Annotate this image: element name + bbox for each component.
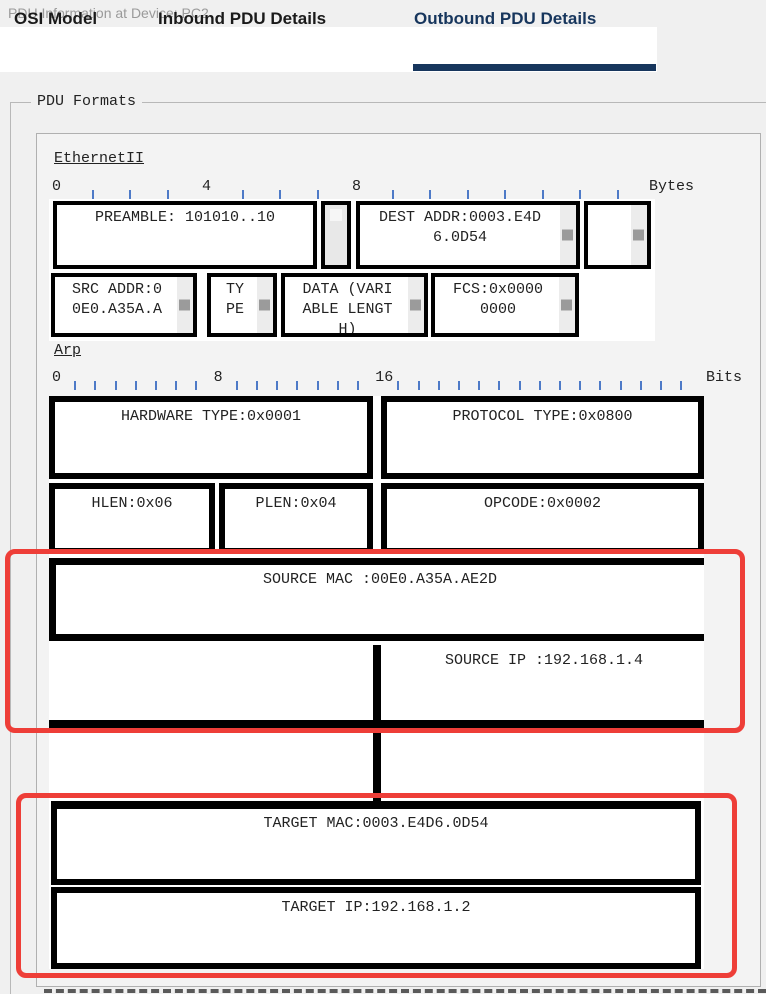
field-hardware-type: HARDWARE TYPE:0x0001 bbox=[49, 396, 373, 479]
ruler-tick bbox=[276, 381, 278, 390]
field-target-mac-value: TARGET MAC:0003.E4D6.0D54 bbox=[57, 809, 695, 834]
window-titlebar: PDU Information at Device: PC2 bbox=[0, 0, 766, 27]
ethernet-section-title: EthernetII bbox=[54, 150, 144, 167]
scrollbar-thumb[interactable] bbox=[410, 300, 421, 311]
ruler-tick bbox=[519, 381, 521, 390]
ruler-tick bbox=[559, 381, 561, 390]
field-source-mac: SOURCE MAC :00E0.A35A.AE2D bbox=[49, 558, 704, 641]
field-dest-addr-value: DEST ADDR:0003.E4D 6.0D54 bbox=[360, 205, 576, 248]
ruler-tick bbox=[317, 381, 319, 390]
ruler-number: 0 bbox=[52, 178, 61, 195]
field-src-addr: SRC ADDR:0 0E0.A35A.A bbox=[51, 273, 197, 337]
field-plen: PLEN:0x04 bbox=[219, 483, 373, 554]
field-protocol-type-value: PROTOCOL TYPE:0x0800 bbox=[387, 402, 698, 427]
tab-inbound-pdu-details[interactable]: Inbound PDU Details bbox=[158, 9, 326, 29]
field-data-value: DATA (VARI ABLE LENGT H) bbox=[285, 277, 424, 337]
ruler-tick bbox=[579, 190, 581, 199]
field-target-ip: TARGET IP:192.168.1.2 bbox=[51, 887, 701, 969]
ruler-tick bbox=[74, 381, 76, 390]
ruler-tick bbox=[337, 381, 339, 390]
ruler-tick bbox=[357, 381, 359, 390]
ruler-tick bbox=[467, 190, 469, 199]
ruler-tick bbox=[478, 381, 480, 390]
arp-section-title: Arp bbox=[54, 342, 81, 359]
ruler-tick bbox=[504, 190, 506, 199]
field-hlen: HLEN:0x06 bbox=[49, 483, 215, 554]
field-opcode: OPCODE:0x0002 bbox=[381, 483, 704, 554]
scrollbar-thumb[interactable] bbox=[633, 230, 644, 241]
ruler-number: 4 bbox=[202, 178, 211, 195]
ruler-tick bbox=[660, 381, 662, 390]
active-tab-underline bbox=[413, 64, 656, 71]
field-target-mac: TARGET MAC:0003.E4D6.0D54 bbox=[51, 801, 701, 885]
ruler-tick bbox=[155, 381, 157, 390]
ruler-tick bbox=[279, 190, 281, 199]
scrollbar-thumb[interactable] bbox=[561, 300, 572, 311]
field-target-ip-value: TARGET IP:192.168.1.2 bbox=[57, 893, 695, 918]
scrollbar-thumb[interactable] bbox=[330, 209, 342, 221]
ruler-tick bbox=[680, 381, 682, 390]
ruler-tick bbox=[498, 381, 500, 390]
tab-outbound-pdu-details[interactable]: Outbound PDU Details bbox=[414, 9, 596, 29]
field-protocol-type: PROTOCOL TYPE:0x0800 bbox=[381, 396, 704, 479]
ruler-tick bbox=[542, 190, 544, 199]
ruler-number: 8 bbox=[352, 178, 361, 195]
ruler-tick bbox=[236, 381, 238, 390]
ruler-unit-label: Bits bbox=[706, 369, 742, 386]
ruler-tick bbox=[579, 381, 581, 390]
ruler-tick bbox=[458, 381, 460, 390]
field-source-mac-value: SOURCE MAC :00E0.A35A.AE2D bbox=[56, 565, 704, 590]
ruler-tick bbox=[135, 381, 137, 390]
scrollbar-thumb[interactable] bbox=[259, 300, 270, 311]
ruler-number: 16 bbox=[375, 369, 393, 386]
ruler-tick bbox=[617, 190, 619, 199]
ruler-tick bbox=[397, 381, 399, 390]
field-empty bbox=[584, 201, 651, 269]
arp-ruler: 0816Bits bbox=[37, 369, 761, 391]
ruler-tick bbox=[620, 381, 622, 390]
field-dest-addr: DEST ADDR:0003.E4D 6.0D54 bbox=[356, 201, 580, 269]
ruler-tick bbox=[317, 190, 319, 199]
ruler-tick bbox=[175, 381, 177, 390]
ruler-tick bbox=[242, 190, 244, 199]
field-opcode-value: OPCODE:0x0002 bbox=[387, 489, 698, 514]
ruler-unit-label: Bytes bbox=[649, 178, 694, 195]
scrollbar-thumb[interactable] bbox=[179, 300, 190, 311]
field-data: DATA (VARI ABLE LENGT H) bbox=[281, 273, 428, 337]
field-type: TY PE bbox=[207, 273, 277, 337]
scrollbar-thumb[interactable] bbox=[562, 230, 573, 241]
tab-osi-model[interactable]: OSI Model bbox=[14, 9, 97, 29]
ruler-tick bbox=[438, 381, 440, 390]
ruler-tick bbox=[115, 381, 117, 390]
field-source-ip: SOURCE IP :192.168.1.4 bbox=[389, 651, 699, 671]
field-sfd-spacer bbox=[321, 201, 351, 269]
ruler-number: 0 bbox=[52, 369, 61, 386]
field-src-addr-value: SRC ADDR:0 0E0.A35A.A bbox=[55, 277, 193, 320]
ruler-tick bbox=[195, 381, 197, 390]
ruler-tick bbox=[92, 190, 94, 199]
field-fcs-value: FCS:0x0000 0000 bbox=[435, 277, 575, 320]
ruler-tick bbox=[256, 381, 258, 390]
pdu-formats-label: PDU Formats bbox=[31, 93, 142, 110]
field-hlen-value: HLEN:0x06 bbox=[55, 489, 209, 514]
ruler-tick bbox=[640, 381, 642, 390]
pdu-format-panel: EthernetII 048Bytes PREAMBLE: 101010..10… bbox=[36, 133, 761, 987]
field-plen-value: PLEN:0x04 bbox=[225, 489, 367, 514]
arp-row-separator bbox=[49, 720, 704, 728]
field-fcs: FCS:0x0000 0000 bbox=[431, 273, 579, 337]
tab-strip-filler bbox=[657, 27, 766, 72]
field-preamble: PREAMBLE: 101010..10 bbox=[53, 201, 317, 269]
ruler-tick bbox=[392, 190, 394, 199]
ruler-tick bbox=[418, 381, 420, 390]
field-hardware-type-value: HARDWARE TYPE:0x0001 bbox=[55, 402, 367, 427]
ruler-number: 8 bbox=[214, 369, 223, 386]
ethernet-ruler: 048Bytes bbox=[37, 178, 761, 200]
bottom-dashed-line bbox=[44, 989, 766, 993]
ruler-tick bbox=[129, 190, 131, 199]
ruler-tick bbox=[539, 381, 541, 390]
ruler-tick bbox=[296, 381, 298, 390]
field-preamble-value: PREAMBLE: 101010..10 bbox=[57, 205, 313, 228]
ruler-tick bbox=[94, 381, 96, 390]
ruler-tick bbox=[429, 190, 431, 199]
ruler-tick bbox=[167, 190, 169, 199]
ruler-tick bbox=[599, 381, 601, 390]
